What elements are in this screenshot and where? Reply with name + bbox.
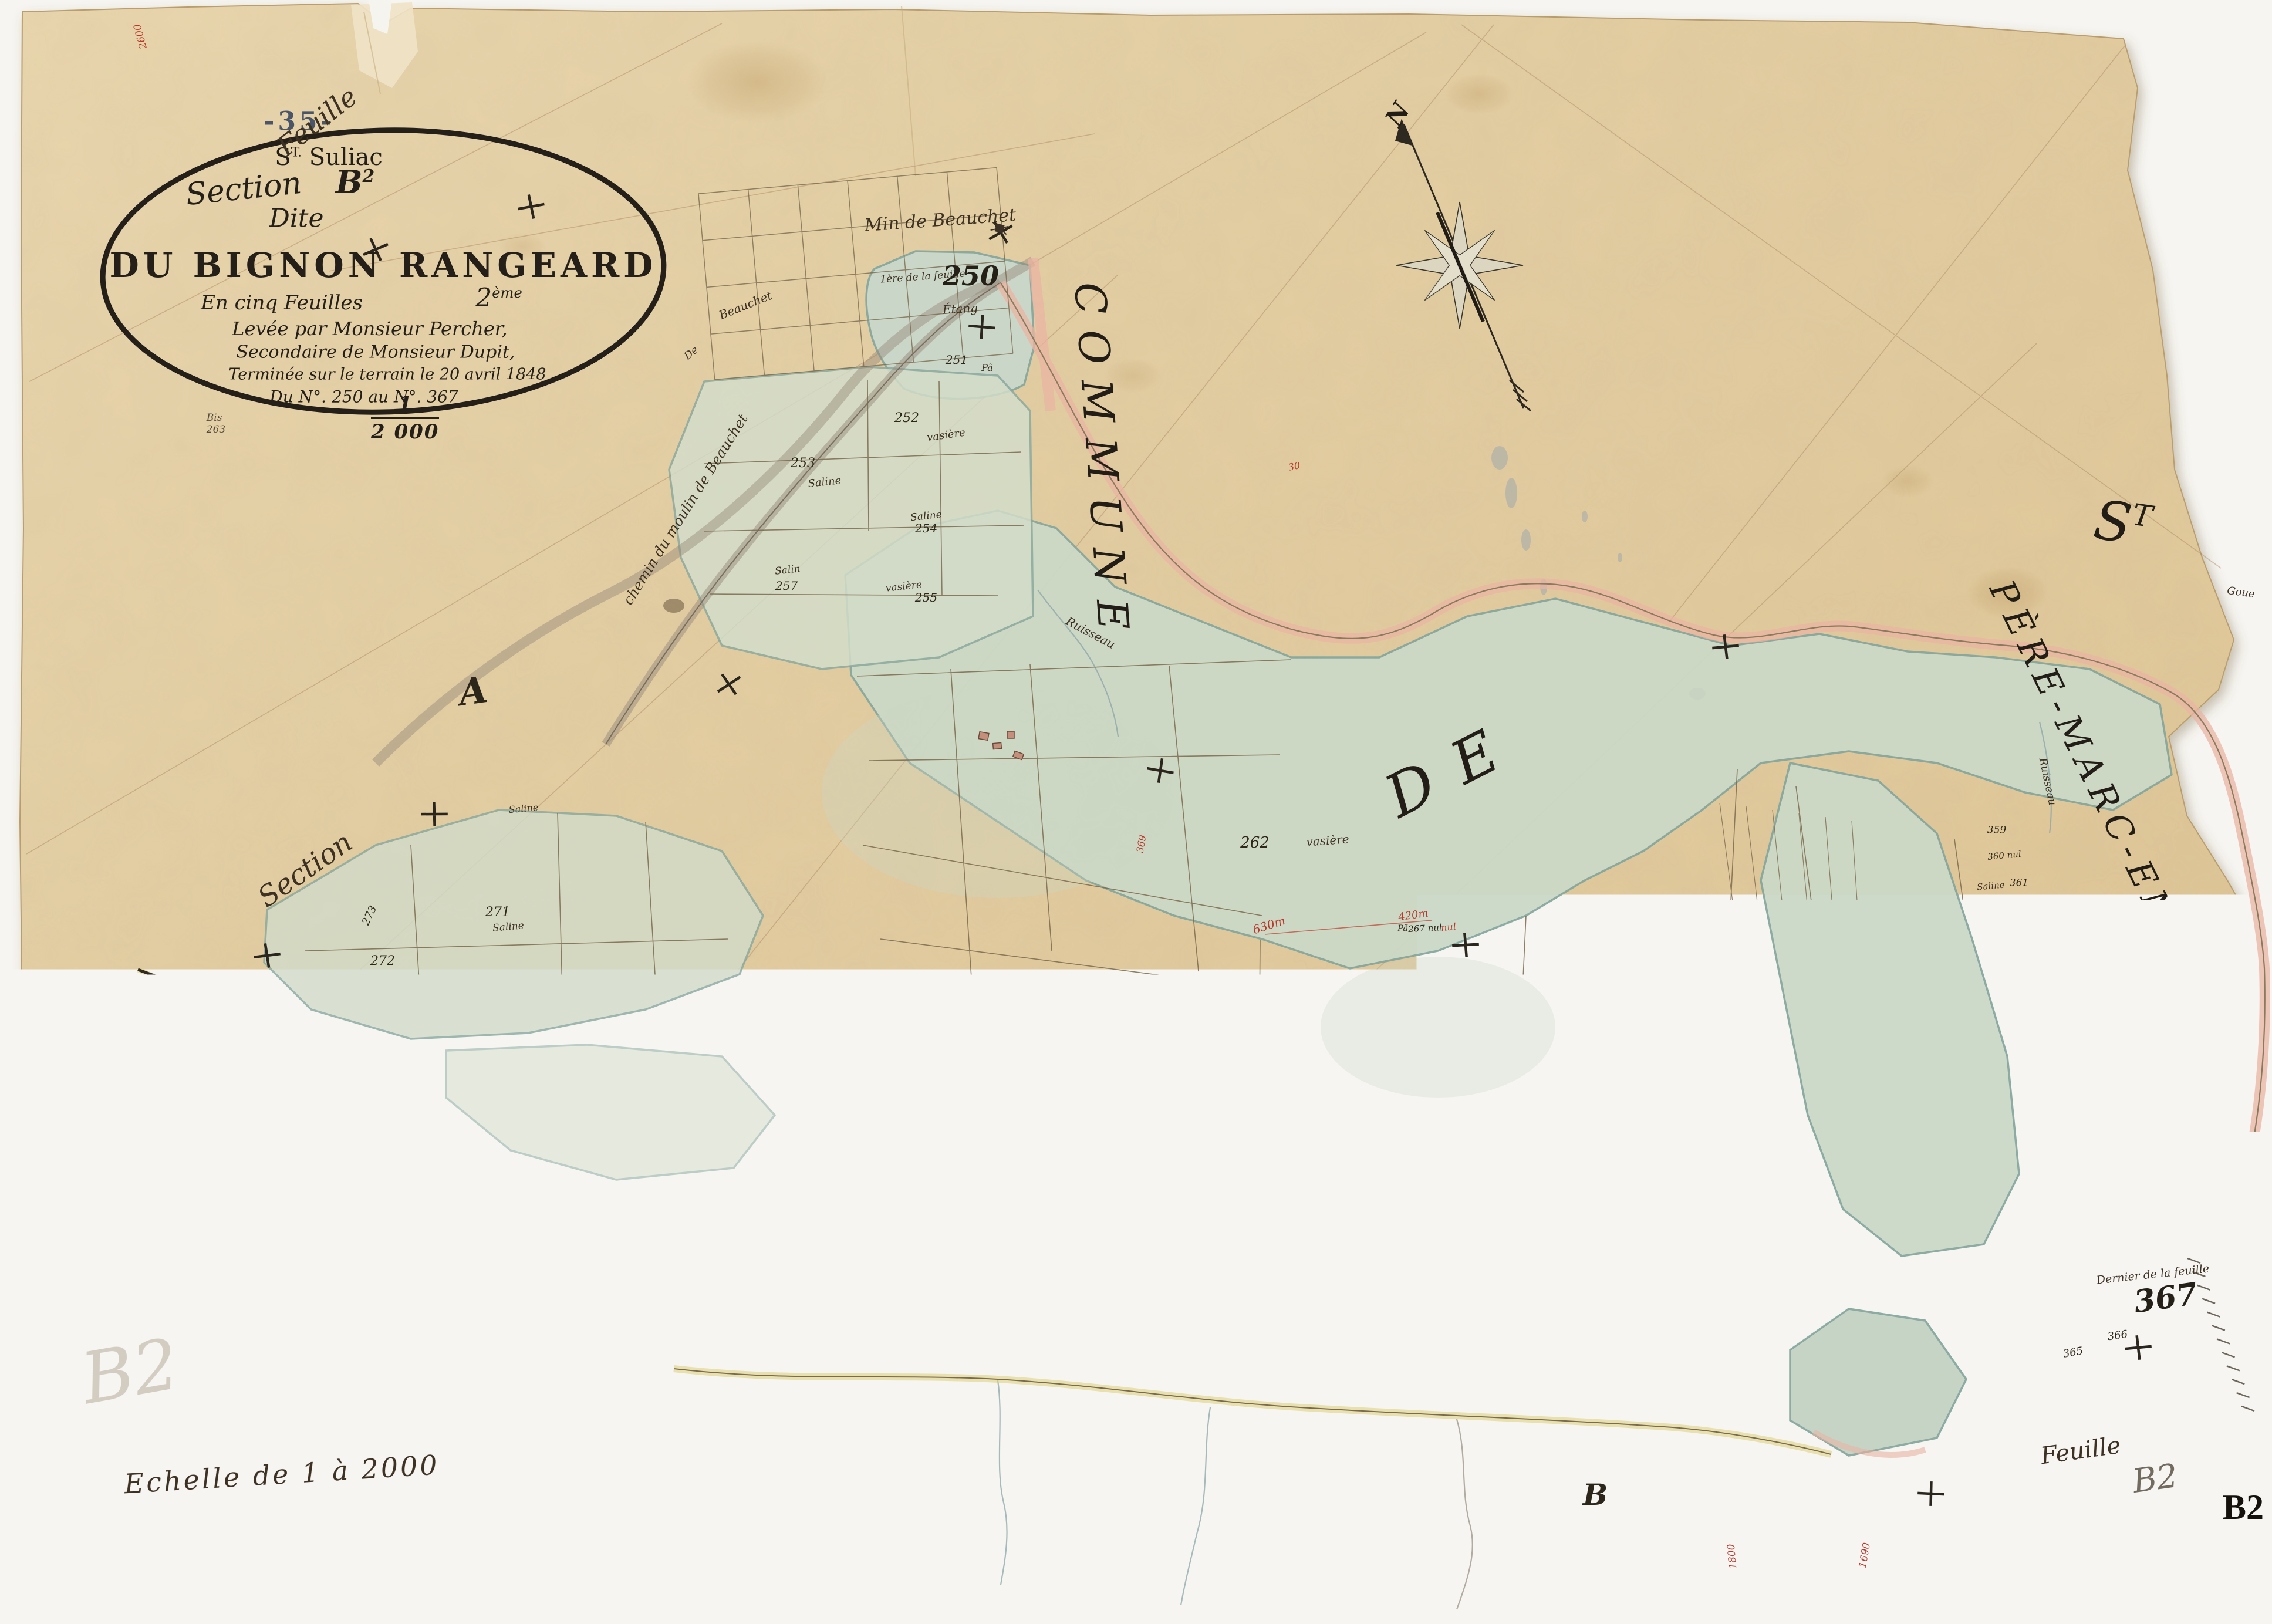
cartouche-feuille-rank: 2ème: [475, 283, 522, 313]
cartouche-title: DU BIGNON RANGEARD: [110, 245, 657, 285]
scale-tick-label: 100: [244, 1525, 262, 1537]
sheet-number: -35-: [264, 107, 335, 137]
scale-tick-label: 200: [364, 1520, 383, 1531]
cartouche-scale-fraction: 1 2 000: [371, 392, 439, 444]
scale-tick-label: 30: [97, 1534, 109, 1545]
scale-tick-label: 80: [33, 1537, 45, 1548]
cartouche-secondaire-line: Secondaire de Monsieur Dupit,: [236, 342, 515, 363]
scale-tick-label: 60: [59, 1536, 70, 1547]
map-canvas: 8070605040302010100200300400: [0, 0, 2272, 1624]
cartouche-termine-line: Terminée sur le terrain le 20 avril 1848: [228, 366, 546, 384]
scale-tick-label: 20: [109, 1534, 121, 1545]
scan-area: 8070605040302010100200300400 -35- ST. Su…: [0, 0, 2272, 1624]
cartouche-leve-line: Levée par Monsieur Percher,: [232, 318, 507, 340]
scale-tick-label: 40: [84, 1535, 96, 1546]
cartouche-feuilles-note: En cinq Feuilles: [201, 291, 363, 315]
scale-tick-label: 70: [46, 1537, 58, 1548]
scale-tick-label: 50: [72, 1535, 83, 1547]
scale-tick-label: 300: [482, 1514, 500, 1525]
cartouche-dite: Dite: [269, 204, 323, 234]
cartouche-bis-note: Bis 263: [207, 412, 225, 435]
cartouche-section-code: B2: [336, 163, 374, 201]
scale-tick-label: 400: [596, 1508, 615, 1520]
scale-tick-label: 10: [122, 1533, 134, 1544]
cadastral-map-scan: { "sheet_number": "-35-", "cartouche": {…: [0, 0, 2272, 1624]
